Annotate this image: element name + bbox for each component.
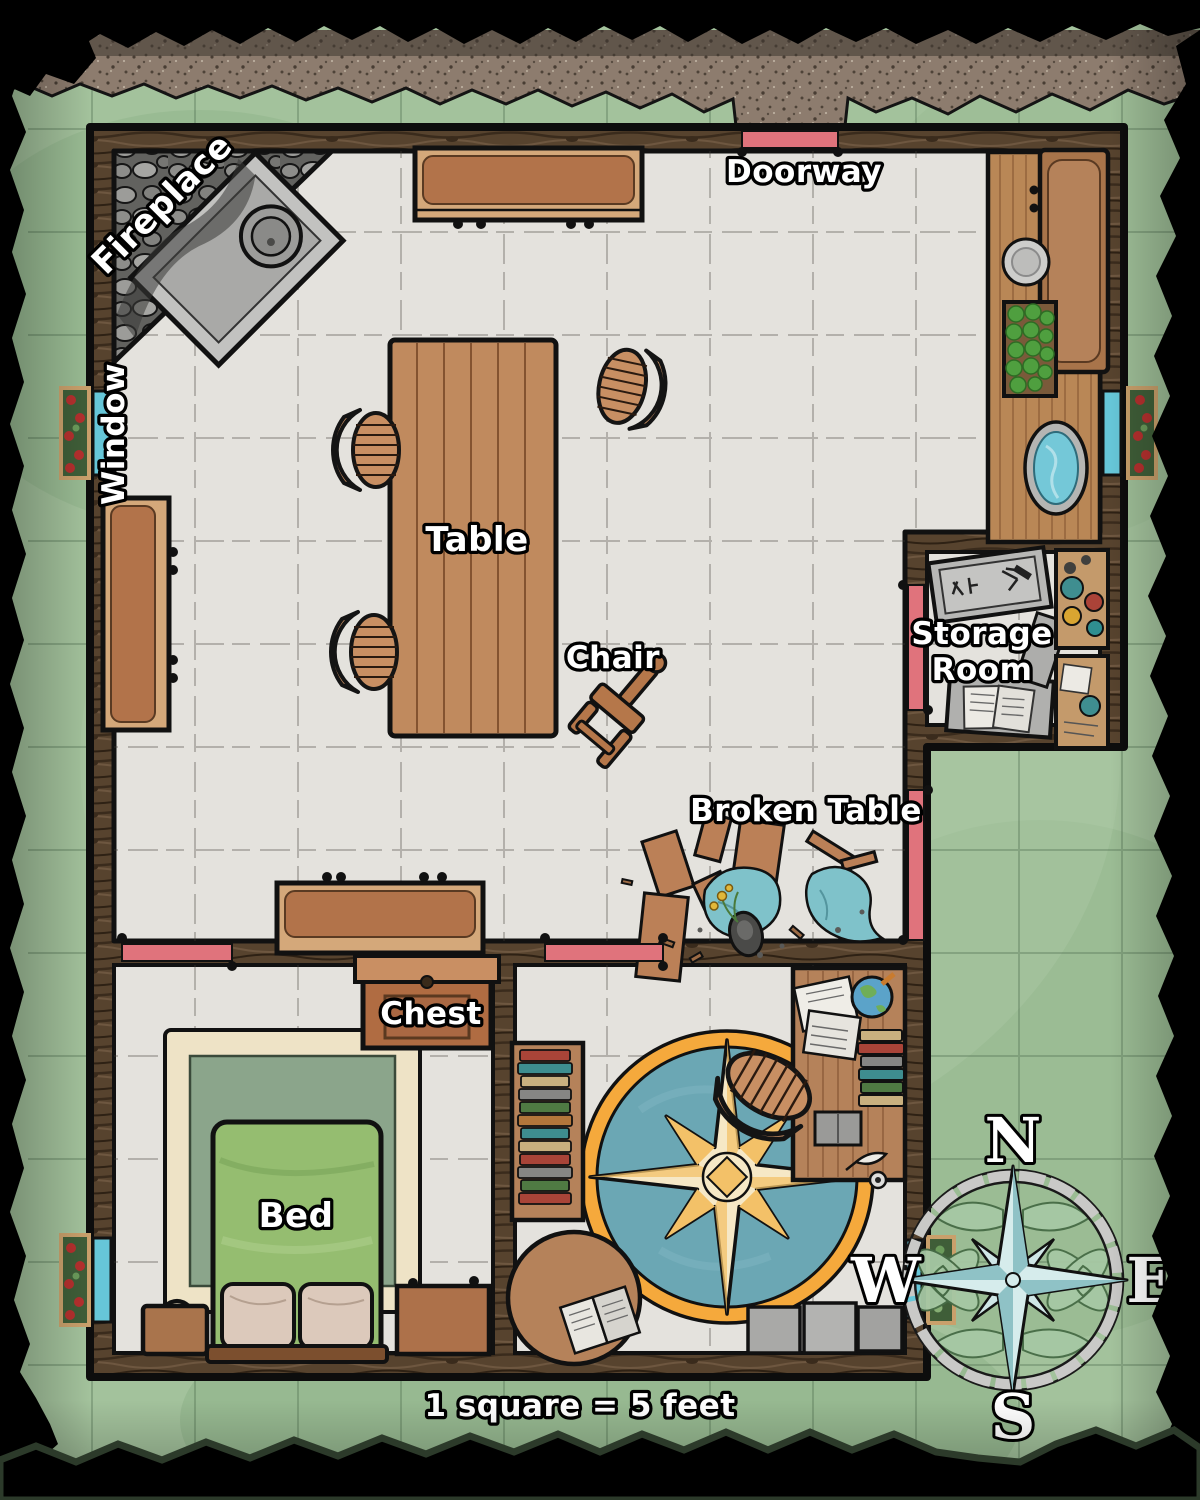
label-chair: Chair [566, 640, 660, 676]
label-storage-room-line1: Storage [911, 616, 1052, 652]
fantasy-battle-map: Fireplace Doorway Window Table Chair Sto… [0, 0, 1200, 1500]
label-bed: Bed [259, 1196, 334, 1236]
door-study [545, 944, 663, 961]
label-chest: Chest [380, 996, 482, 1032]
bench-bottom [277, 872, 483, 953]
compass-letter-w: W [850, 1244, 922, 1317]
suitcase [143, 1301, 207, 1354]
nightstand [397, 1276, 489, 1354]
label-broken-table: Broken Table [690, 793, 922, 829]
papers [794, 977, 861, 1060]
bookshelf [512, 1043, 583, 1220]
round-table [508, 1232, 640, 1364]
bench-top [415, 148, 642, 229]
label-window: Window [96, 363, 132, 505]
label-storage-room-line2: Room [932, 652, 1033, 688]
storage-shelf-bottom [1056, 656, 1108, 748]
bench-left [103, 498, 178, 730]
desk [793, 968, 905, 1188]
pillow [300, 1284, 372, 1348]
map-canvas: Fireplace Doorway Window Table Chair Sto… [0, 0, 1200, 1500]
wash-basin [1025, 422, 1087, 514]
bed-footboard [207, 1346, 387, 1362]
globe-icon [852, 974, 894, 1017]
pillow [222, 1284, 294, 1348]
book-stack [858, 1030, 904, 1106]
label-table: Table [425, 520, 528, 560]
plate [1003, 239, 1049, 285]
label-doorway: Doorway [726, 154, 882, 190]
door-top-doorway [742, 131, 838, 148]
door-bedroom [122, 944, 232, 961]
compass-letter-n: N [985, 1104, 1042, 1177]
produce-crate [1004, 302, 1056, 396]
bed [207, 1122, 387, 1362]
storage-shelf-top [1056, 550, 1108, 648]
